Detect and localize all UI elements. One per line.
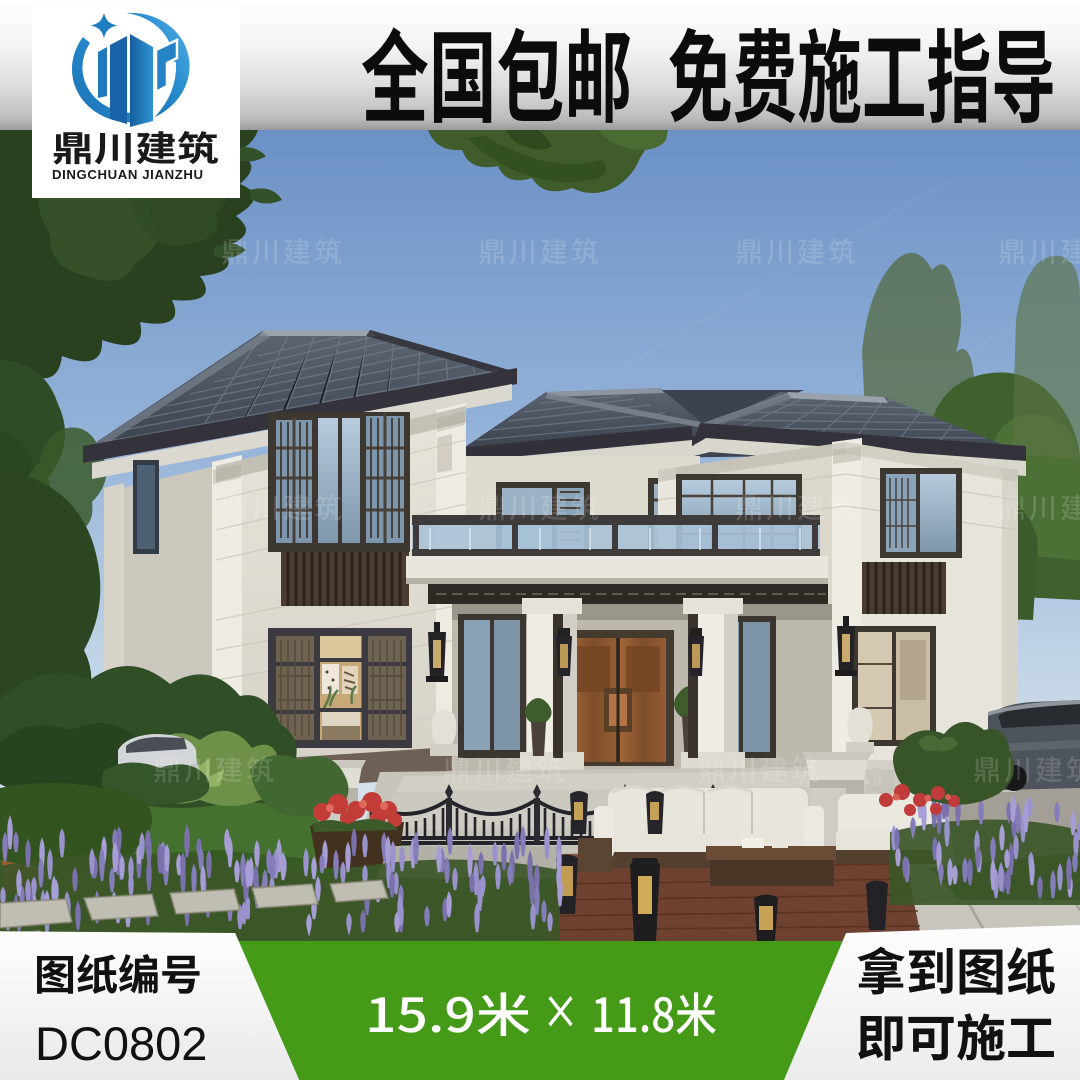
svg-text:DC0802: DC0802 [35, 1017, 207, 1070]
svg-text:DINGCHUAN JIANZHU: DINGCHUAN JIANZHU [52, 167, 204, 182]
